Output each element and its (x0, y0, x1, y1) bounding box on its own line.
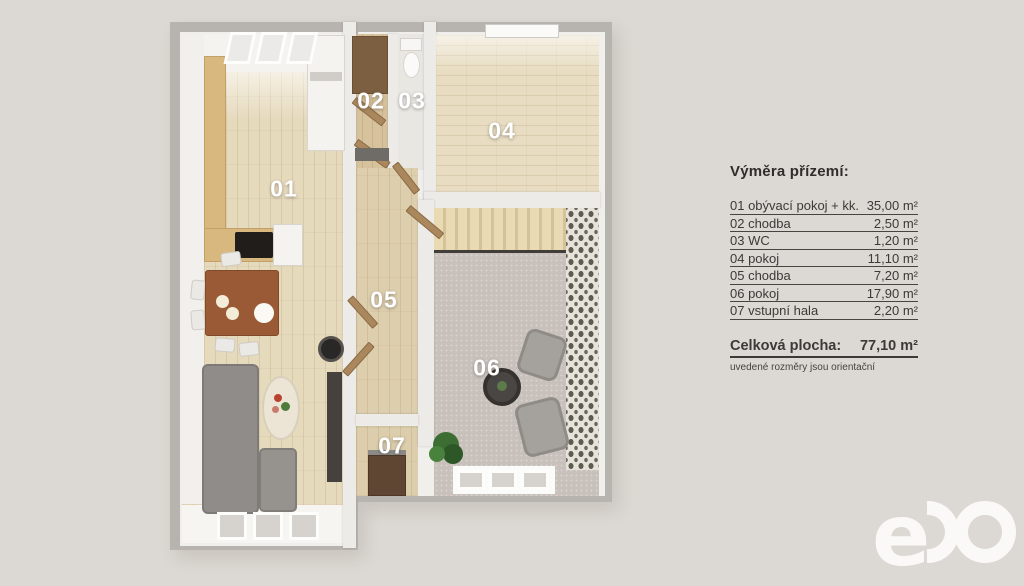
dining-chair (220, 251, 242, 268)
tv-cabinet (327, 372, 342, 482)
legend-row-value: 17,90 m² (867, 287, 918, 301)
room-04-window-light (436, 35, 599, 80)
room-label-02: 02 (357, 88, 385, 115)
bay-window-pane (289, 512, 319, 540)
staircase (434, 208, 566, 250)
legend-row-label: 03 WC (730, 234, 770, 248)
edo-logo: e (872, 501, 1016, 563)
dining-table (205, 270, 279, 336)
sofa-chaise (259, 448, 297, 512)
flowers-icon (281, 402, 290, 411)
legend-row-label: 05 chodba (730, 269, 791, 283)
plant-leaf (429, 446, 445, 462)
legend-row-value: 2,20 m² (874, 304, 918, 318)
room-label-03: 03 (398, 88, 426, 115)
cooktop (235, 232, 273, 258)
dining-chair (214, 337, 235, 353)
flowers-icon (272, 406, 279, 413)
dining-chair (238, 341, 259, 357)
area-legend: Výměra přízemí: 01 obývací pokoj + kk. 3… (730, 163, 918, 373)
coffee-table (262, 376, 300, 440)
floorplan-render: 01 02 03 04 05 06 07 (165, 8, 617, 564)
table-plant-icon (497, 381, 507, 391)
plate (226, 307, 239, 320)
window-pane (521, 470, 549, 490)
legend-total-value: 77,10 m² (860, 338, 918, 354)
plant-leaf (443, 444, 463, 464)
legend-row: 05 chodba 7,20 m² (730, 269, 918, 285)
wall-02-03 (388, 34, 398, 170)
hall-bench (355, 148, 389, 161)
room-label-01: 01 (270, 176, 298, 203)
legend-row-value: 11,10 m² (868, 252, 918, 266)
legend-row: 07 vstupní hala 2,20 m² (730, 304, 918, 320)
wall-05-07 (356, 414, 418, 426)
kitchen-cabinet (273, 224, 303, 266)
legend-row: 04 pokoj 11,10 m² (730, 252, 918, 268)
legend-disclaimer: uvedené rozměry jsou orientační (730, 362, 918, 373)
room-06-window (453, 466, 555, 494)
legend-rows: 01 obývací pokoj + kk. 35,00 m² 02 chodb… (730, 199, 918, 320)
room-label-06: 06 (473, 355, 501, 382)
dining-chair (190, 279, 206, 300)
dining-chair (190, 309, 206, 330)
wall-03-04 (424, 22, 436, 214)
legend-row-value: 1,20 m² (874, 234, 918, 248)
legend-total: Celková plocha: 77,10 m² (730, 338, 918, 358)
legend-row-label: 04 pokoj (730, 252, 779, 266)
legend-row: 03 WC 1,20 m² (730, 234, 918, 250)
logo-letter-o-shape (954, 501, 1016, 563)
legend-row: 06 pokoj 17,90 m² (730, 287, 918, 303)
window-pane (489, 470, 517, 490)
plate (216, 295, 229, 308)
legend-row-label: 07 vstupní hala (730, 304, 818, 318)
legend-row-value: 2,50 m² (874, 217, 918, 231)
legend-row: 02 chodba 2,50 m² (730, 217, 918, 233)
legend-row-label: 06 pokoj (730, 287, 779, 301)
legend-row: 01 obývací pokoj + kk. 35,00 m² (730, 199, 918, 215)
legend-row-value: 7,20 m² (874, 269, 918, 283)
wall-04-06 (424, 192, 600, 208)
toilet (403, 52, 420, 78)
bay-window-pane (253, 512, 283, 540)
sofa (202, 364, 259, 514)
accent-wallpaper-wall (566, 208, 599, 470)
legend-row-value: 35,00 m² (867, 199, 918, 213)
window-pane (457, 470, 485, 490)
room-label-05: 05 (370, 287, 398, 314)
staircase-edge (434, 250, 566, 253)
legend-row-label: 02 chodba (730, 217, 791, 231)
cabinet-shadow (310, 72, 342, 81)
entry-door (368, 455, 406, 496)
flowers-icon (274, 394, 282, 402)
logo-letter-e: e (872, 509, 930, 563)
stool (318, 336, 344, 362)
legend-title: Výměra přízemí: (730, 163, 918, 180)
room-label-07: 07 (378, 433, 406, 460)
screenshot-root: 01 02 03 04 05 06 07 Výměra přízemí: 01 … (0, 0, 1024, 576)
room-label-04: 04 (488, 118, 516, 145)
legend-total-label: Celková plocha: (730, 338, 841, 354)
kitchen-counter (204, 56, 226, 240)
room-04-window (485, 24, 559, 38)
plate (254, 303, 274, 323)
toilet-tank (400, 38, 422, 51)
wall-05-06 (418, 200, 434, 446)
left-wall-band (182, 34, 204, 504)
legend-row-label: 01 obývací pokoj + kk. (730, 199, 859, 213)
wardrobe (352, 36, 388, 94)
bay-window-pane (217, 512, 247, 540)
